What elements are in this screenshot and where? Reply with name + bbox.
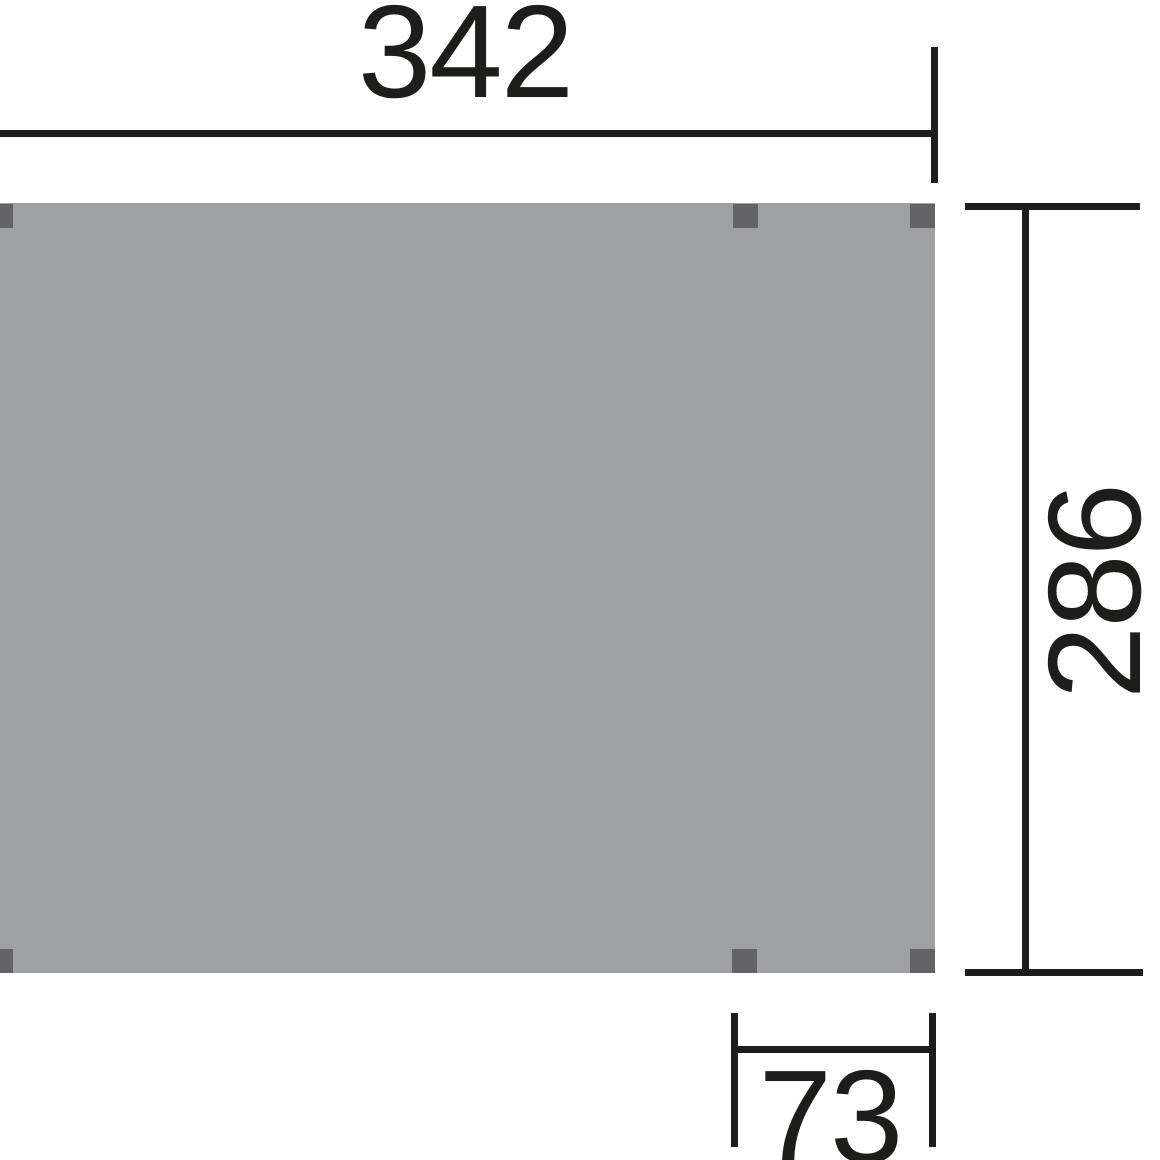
width-dimension-tick-right bbox=[931, 47, 938, 183]
depth-dimension-tick-bottom bbox=[965, 969, 1143, 976]
post-bottom-right bbox=[910, 949, 935, 973]
canopy-surface bbox=[0, 203, 935, 973]
depth-dimension-tick-top bbox=[965, 203, 1140, 210]
post-top-middle bbox=[733, 204, 758, 228]
post-top-right bbox=[910, 204, 935, 228]
post-bottom-middle bbox=[732, 949, 757, 973]
offset-dimension-label: 73 bbox=[680, 1051, 980, 1160]
width-dimension-line bbox=[0, 130, 938, 137]
post-bottom-left bbox=[0, 949, 13, 973]
dimension-drawing: 342 286 73 bbox=[0, 0, 1160, 1160]
width-dimension-label: 342 bbox=[315, 0, 615, 118]
post-top-left bbox=[0, 204, 13, 228]
depth-dimension-label: 286 bbox=[1029, 442, 1160, 742]
